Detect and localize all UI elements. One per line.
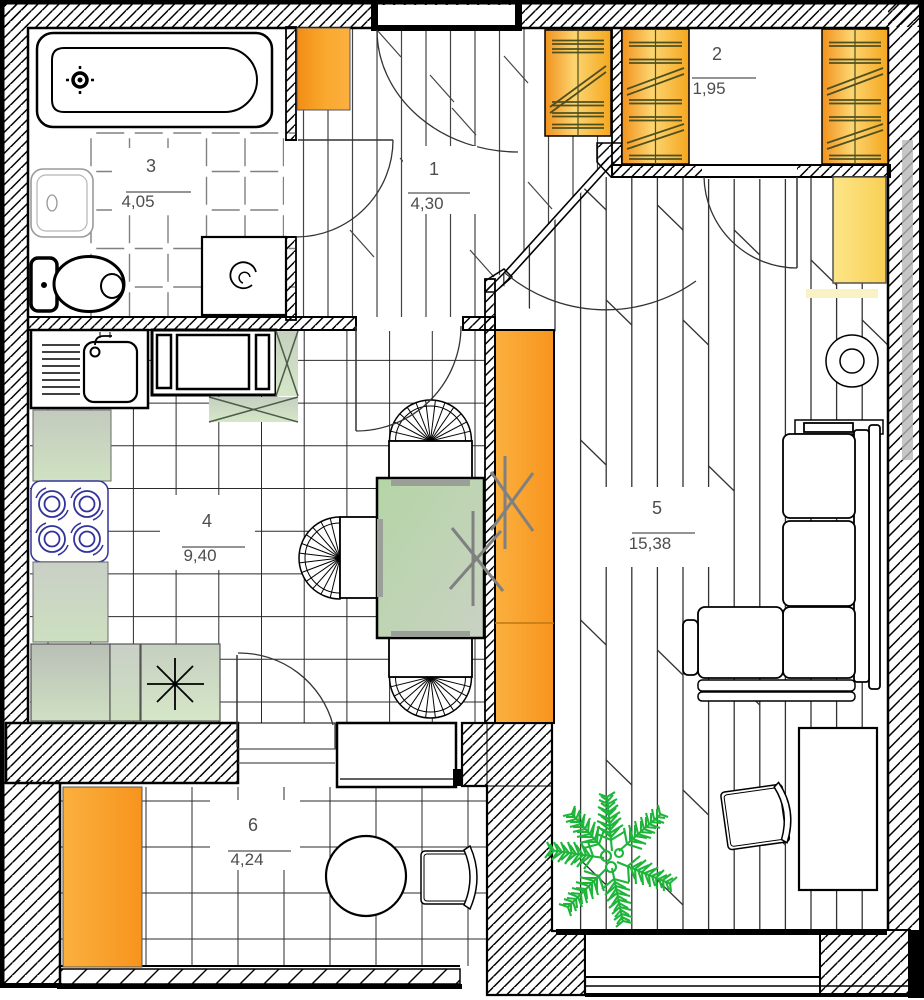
svg-text:15,38: 15,38 xyxy=(629,534,672,553)
svg-text:9,40: 9,40 xyxy=(183,546,216,565)
svg-text:4,05: 4,05 xyxy=(121,192,154,211)
svg-text:1: 1 xyxy=(429,159,439,179)
svg-text:5: 5 xyxy=(652,498,662,518)
svg-text:6: 6 xyxy=(248,815,258,835)
svg-text:3: 3 xyxy=(146,156,156,176)
svg-text:2: 2 xyxy=(712,44,722,64)
svg-text:4,30: 4,30 xyxy=(410,194,443,213)
svg-text:4: 4 xyxy=(202,511,212,531)
svg-text:4,24: 4,24 xyxy=(230,850,263,869)
svg-text:1,95: 1,95 xyxy=(692,79,725,98)
